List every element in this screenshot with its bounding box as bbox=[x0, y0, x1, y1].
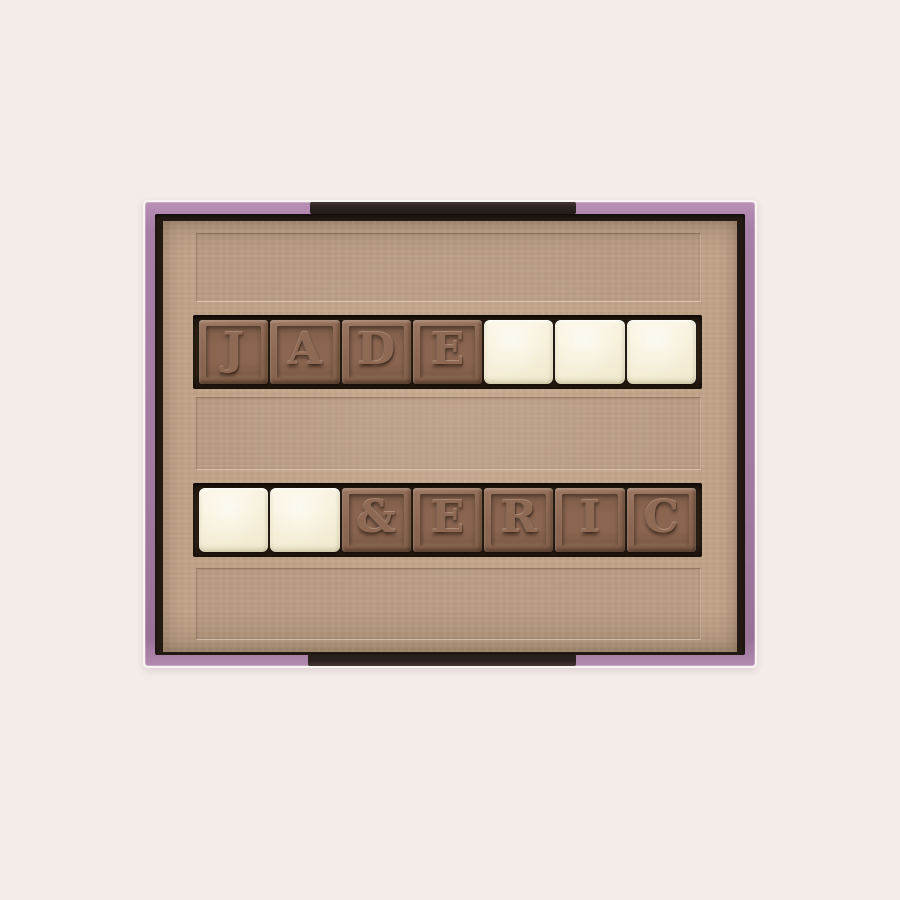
white-chocolate-blank-tile bbox=[484, 320, 553, 384]
box-rim-accent-top bbox=[310, 202, 576, 214]
white-chocolate-blank-tile bbox=[270, 488, 339, 552]
tile-face: E bbox=[420, 494, 475, 546]
tile-face: D bbox=[349, 326, 404, 378]
tile-face bbox=[488, 323, 549, 380]
embossed-letter: E bbox=[431, 328, 465, 372]
milk-chocolate-letter-tile-d: D bbox=[342, 320, 411, 384]
milk-chocolate-letter-tile-a: A bbox=[270, 320, 339, 384]
embossed-letter: I bbox=[580, 496, 601, 540]
tile-face bbox=[274, 491, 335, 548]
milk-chocolate-letter-tile-ampersand: & bbox=[342, 488, 411, 552]
tile-row-2: &ERIC bbox=[193, 483, 702, 557]
box-interior-shadow: JADE &ERIC bbox=[155, 214, 745, 655]
embossed-letter: R bbox=[500, 496, 537, 540]
kraft-tray: JADE &ERIC bbox=[163, 221, 737, 652]
tray-emboss-panel-top bbox=[196, 233, 701, 302]
tile-face: I bbox=[562, 494, 617, 546]
gift-box: JADE &ERIC bbox=[143, 200, 757, 668]
white-chocolate-blank-tile bbox=[555, 320, 624, 384]
tile-face: J bbox=[206, 326, 261, 378]
embossed-letter: J bbox=[223, 328, 244, 372]
tile-face bbox=[203, 491, 264, 548]
embossed-letter: D bbox=[357, 328, 395, 372]
tile-face: R bbox=[491, 494, 546, 546]
tile-face bbox=[631, 323, 692, 380]
embossed-letter: A bbox=[288, 328, 322, 372]
tile-face: A bbox=[277, 326, 332, 378]
product-photo: JADE &ERIC bbox=[0, 0, 900, 900]
milk-chocolate-letter-tile-e: E bbox=[413, 320, 482, 384]
tray-emboss-panel-bottom bbox=[196, 568, 701, 640]
milk-chocolate-letter-tile-i: I bbox=[555, 488, 624, 552]
embossed-letter: C bbox=[644, 496, 679, 540]
box-rim-accent-bottom bbox=[308, 654, 576, 666]
milk-chocolate-letter-tile-j: J bbox=[199, 320, 268, 384]
tile-face: & bbox=[349, 494, 404, 546]
embossed-letter: E bbox=[431, 496, 465, 540]
embossed-letter: & bbox=[356, 496, 396, 540]
milk-chocolate-letter-tile-c: C bbox=[627, 488, 696, 552]
tile-face: E bbox=[420, 326, 475, 378]
white-chocolate-blank-tile bbox=[199, 488, 268, 552]
milk-chocolate-letter-tile-e: E bbox=[413, 488, 482, 552]
tile-row-1: JADE bbox=[193, 315, 702, 389]
milk-chocolate-letter-tile-r: R bbox=[484, 488, 553, 552]
tray-emboss-panel-middle bbox=[196, 397, 701, 470]
tile-face: C bbox=[634, 494, 689, 546]
tile-face bbox=[559, 323, 620, 380]
white-chocolate-blank-tile bbox=[627, 320, 696, 384]
